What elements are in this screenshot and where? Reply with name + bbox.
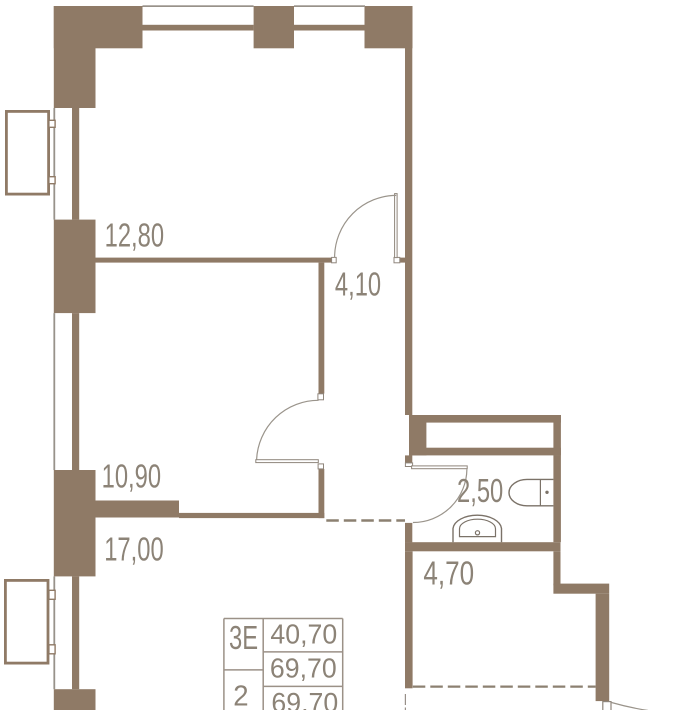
- svg-text:4,10: 4,10: [335, 267, 381, 304]
- svg-text:40,70: 40,70: [270, 618, 337, 650]
- svg-text:12,80: 12,80: [105, 218, 164, 255]
- svg-text:3Е: 3Е: [229, 620, 258, 657]
- svg-text:2: 2: [233, 680, 248, 710]
- svg-text:69,70: 69,70: [271, 687, 338, 710]
- svg-text:2,50: 2,50: [457, 474, 503, 511]
- svg-text:4,70: 4,70: [423, 555, 474, 592]
- svg-text:69,70: 69,70: [270, 652, 337, 684]
- svg-text:10,90: 10,90: [102, 459, 161, 496]
- svg-text:17,00: 17,00: [104, 532, 163, 569]
